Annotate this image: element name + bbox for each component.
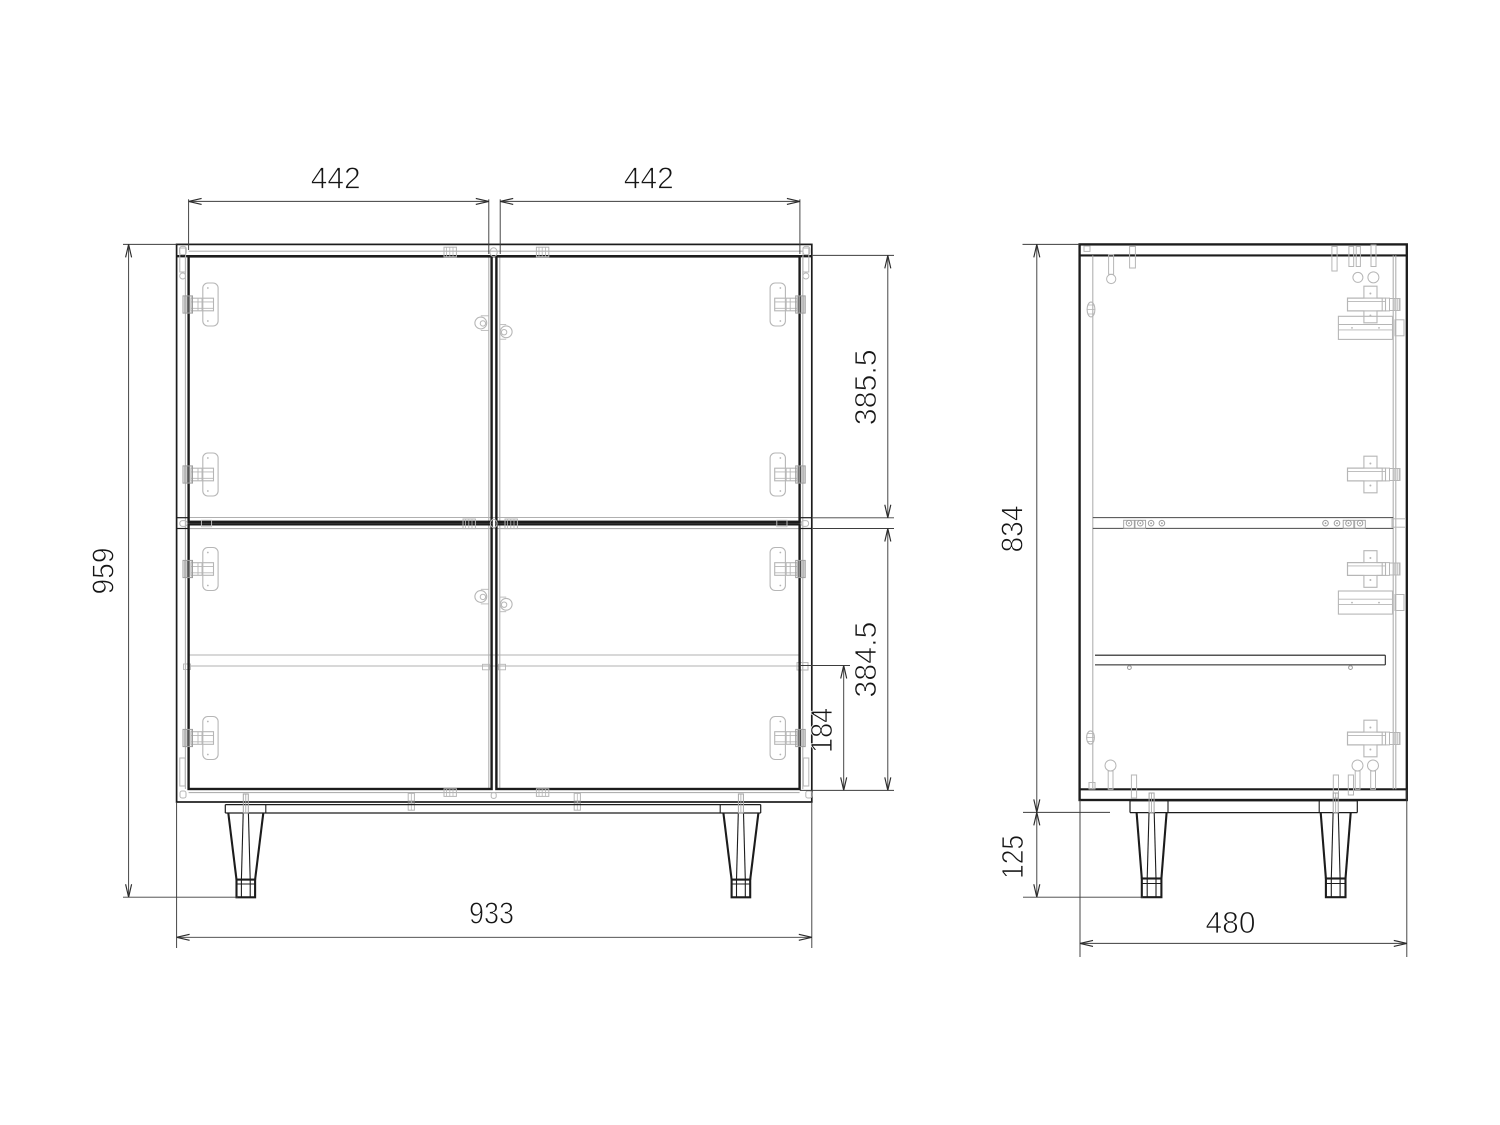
svg-text:125: 125 <box>996 835 1030 879</box>
svg-text:442: 442 <box>624 162 674 196</box>
svg-text:184: 184 <box>805 708 839 753</box>
svg-text:959: 959 <box>87 548 121 595</box>
svg-text:384.5: 384.5 <box>849 622 883 698</box>
svg-text:442: 442 <box>311 162 361 196</box>
svg-text:933: 933 <box>469 897 514 931</box>
svg-text:480: 480 <box>1206 906 1256 940</box>
svg-text:834: 834 <box>996 505 1030 552</box>
svg-text:385.5: 385.5 <box>849 349 883 425</box>
